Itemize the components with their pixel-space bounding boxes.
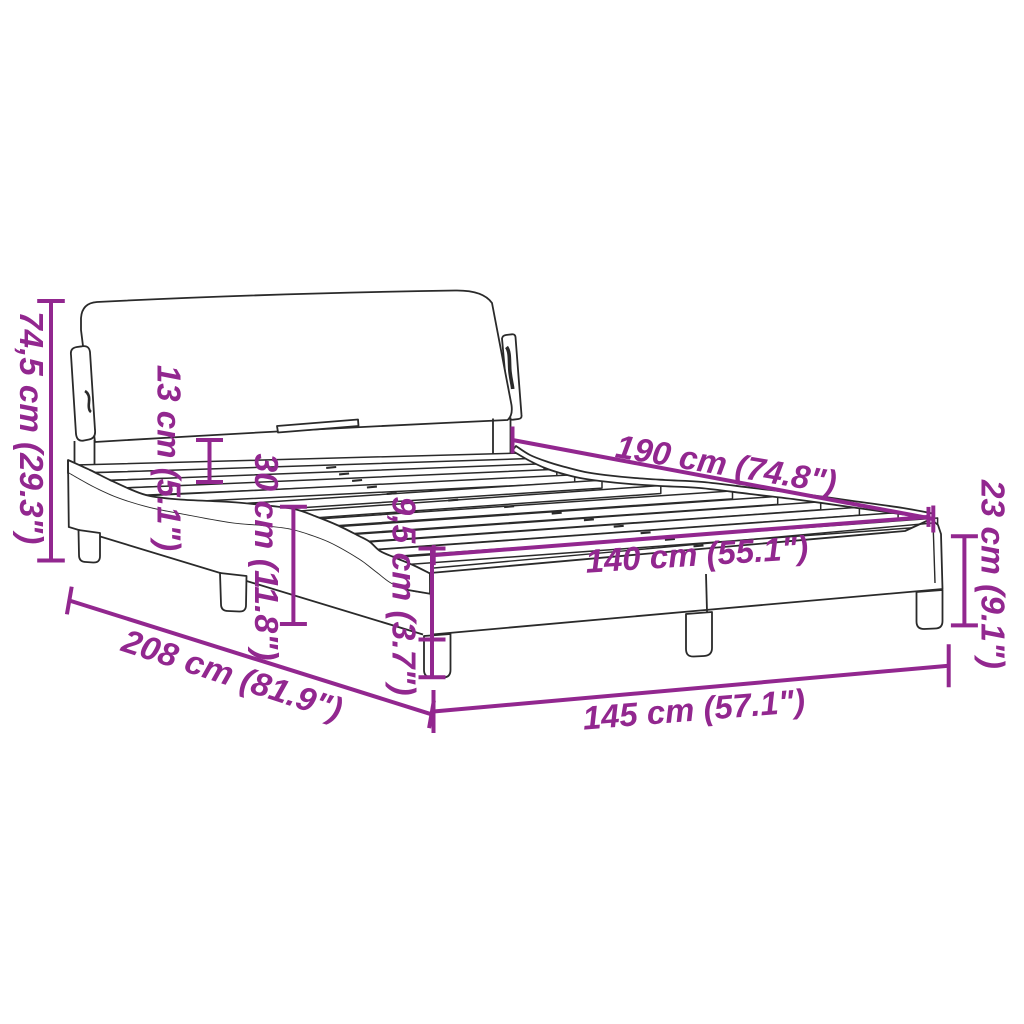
svg-text:30 cm (11.8"): 30 cm (11.8") (248, 454, 285, 661)
svg-text:9,5 cm (3.7"): 9,5 cm (3.7") (385, 497, 422, 696)
svg-text:23 cm (9.1"): 23 cm (9.1") (974, 479, 1011, 669)
svg-text:74,5 cm (29.3"): 74,5 cm (29.3") (13, 311, 50, 544)
svg-text:13 cm (5.1"): 13 cm (5.1") (150, 365, 187, 551)
